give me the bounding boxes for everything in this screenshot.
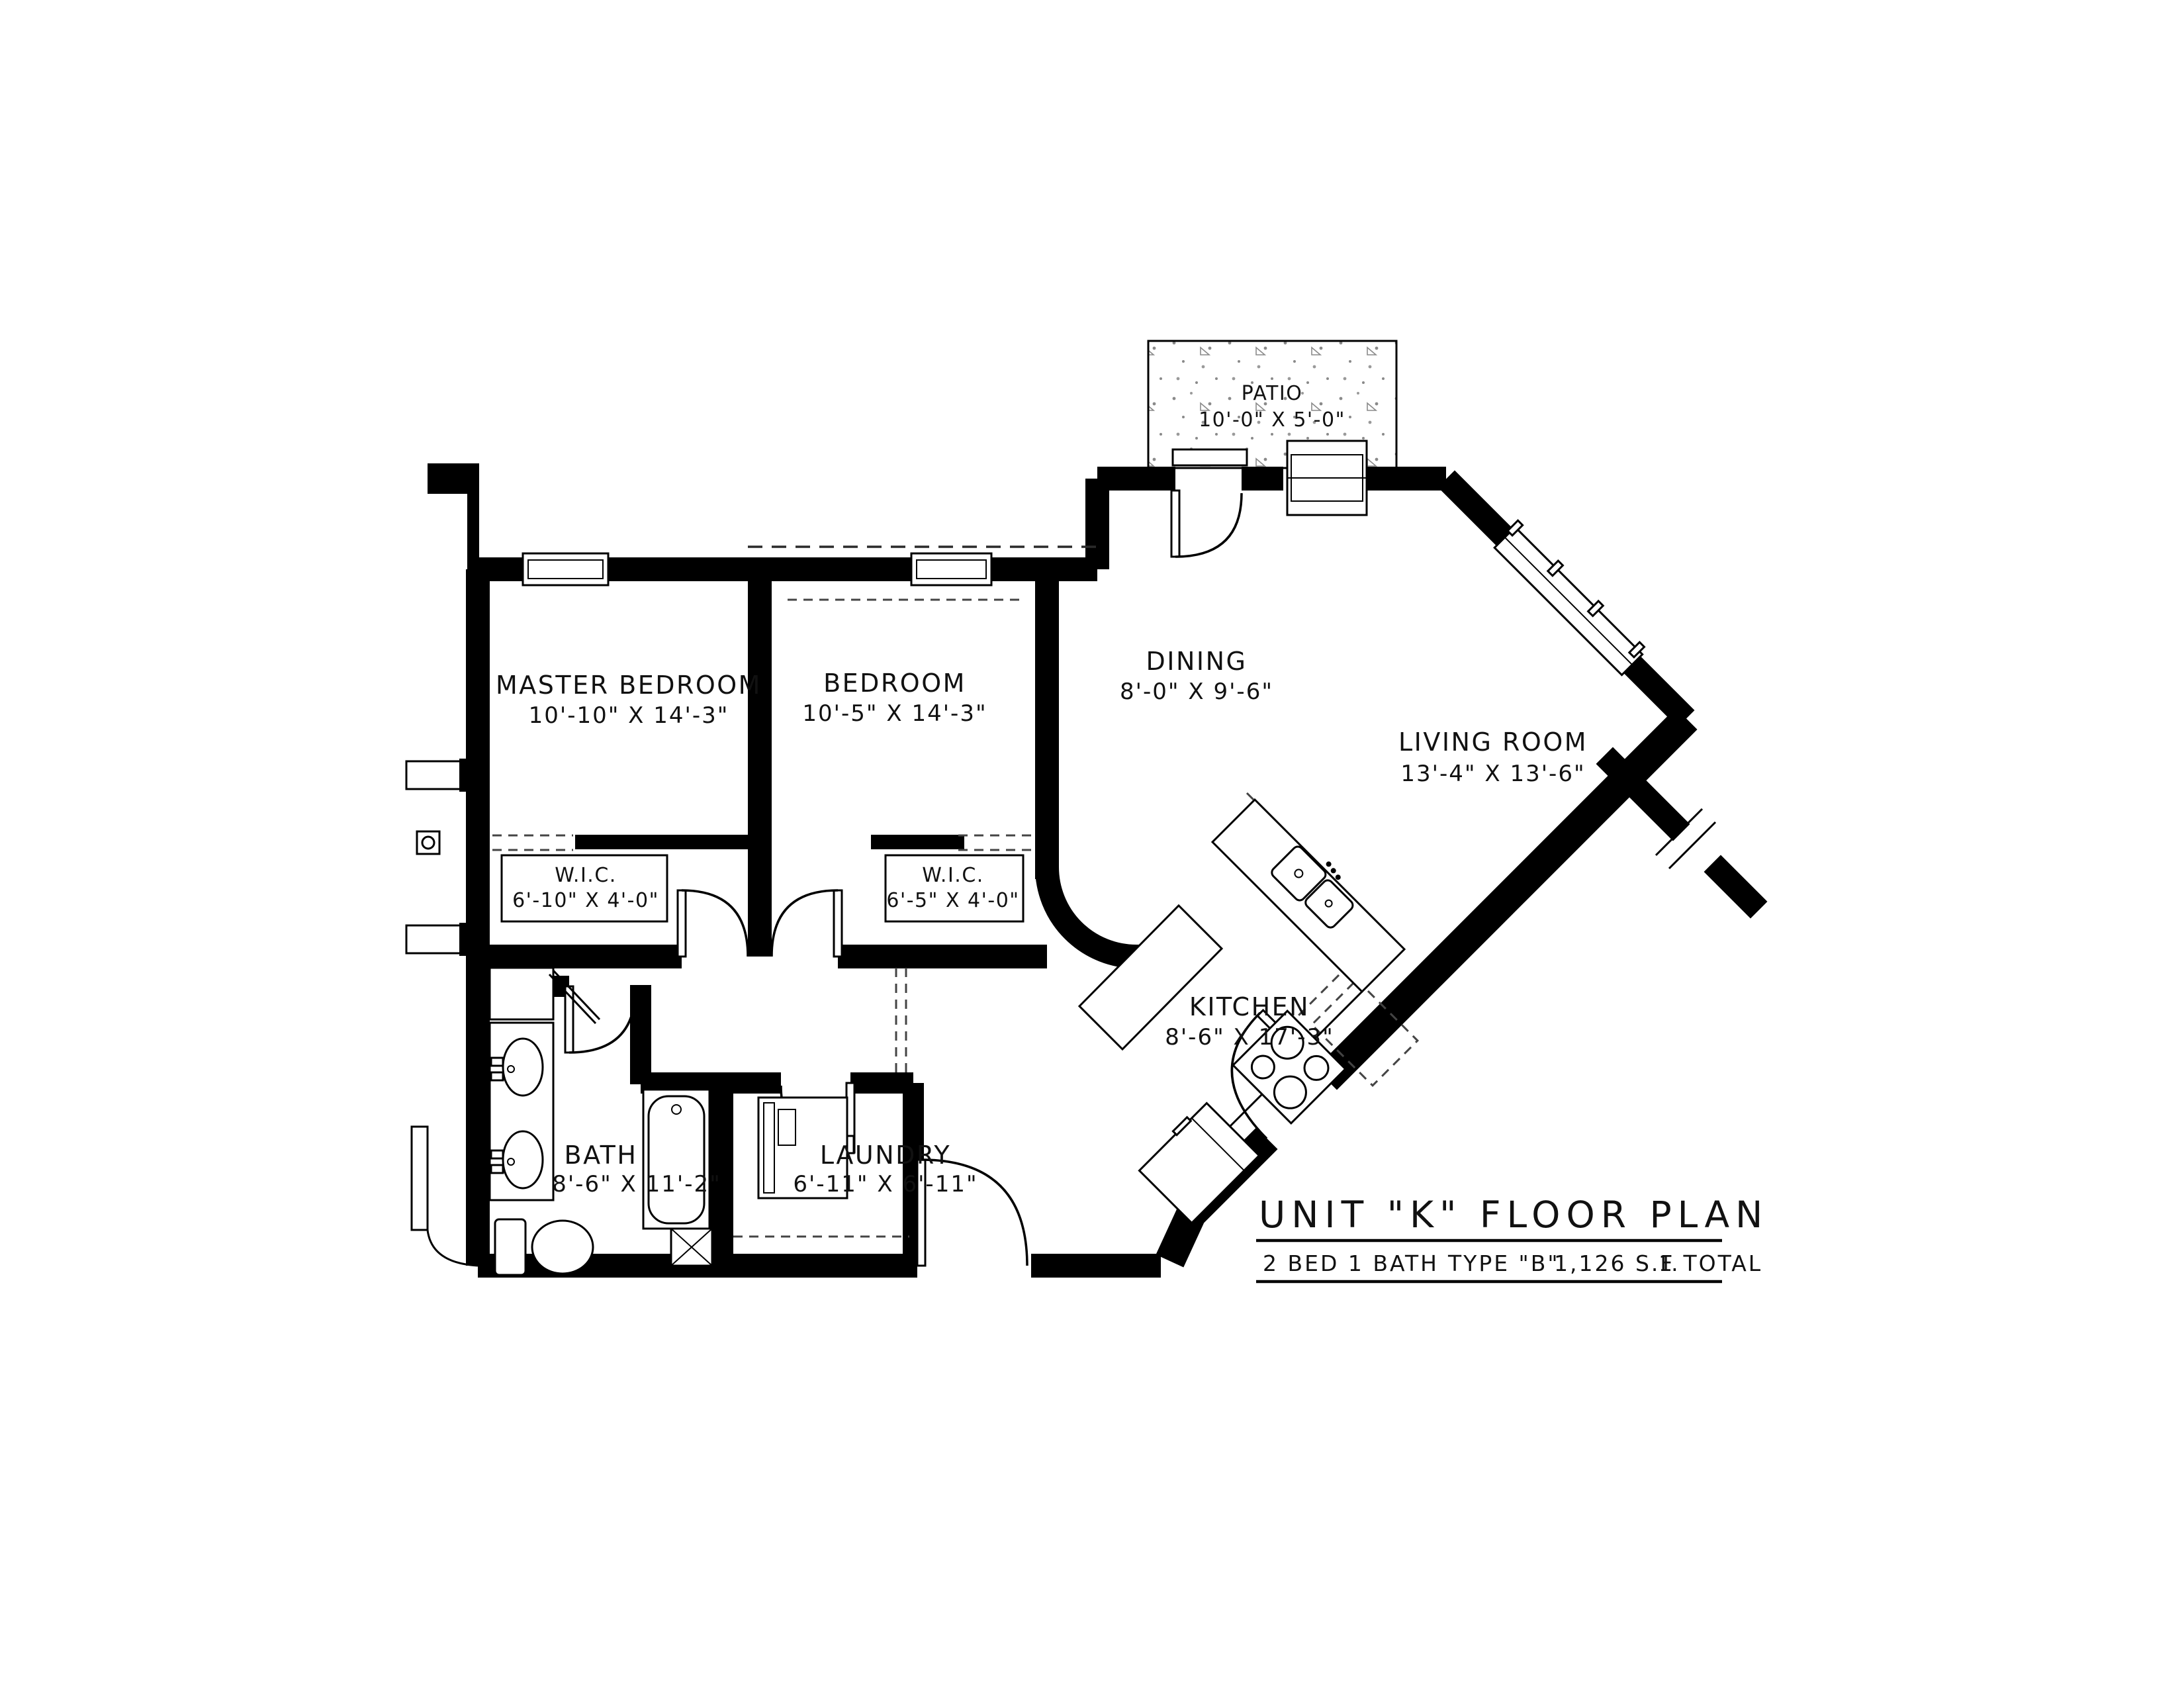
kitchen-peninsula-counter (1212, 800, 1404, 992)
bath-fixtures (490, 968, 712, 1275)
vanity-double-sink (490, 1023, 553, 1200)
patio-door-threshold (1173, 449, 1247, 465)
dining-dims: 8'-0" X 9'-6" (1120, 679, 1273, 705)
exterior-stub-upper (406, 761, 466, 789)
plan-type: TYPE "B" (1447, 1250, 1560, 1276)
bath-dims: 8'-6" X 11'-2" (552, 1171, 721, 1197)
master-bedroom-window (523, 553, 608, 585)
wic-master-name: W.I.C. (555, 864, 617, 887)
plan-beds-baths: 2 BED 1 BATH (1263, 1250, 1439, 1276)
wic-master-label: W.I.C. 6'-10" X 4'-0" (512, 864, 659, 912)
party-wall-branch (1613, 764, 1751, 902)
master-bedroom-label: MASTER BEDROOM 10'-10" X 14'-3" (496, 671, 762, 729)
bedroom-name: BEDROOM (823, 669, 966, 698)
kitchen-name: KITCHEN (1189, 992, 1310, 1021)
exterior-stub-upper-cap (459, 759, 469, 792)
dining-window (1287, 441, 1367, 515)
master-bedroom-dims: 10'-10" X 14'-3" (529, 702, 729, 729)
dining-name: DINING (1146, 647, 1248, 676)
plan-total: 1 TOTAL (1659, 1250, 1762, 1276)
kitchen-dims: 8'-6" X 17'-3" (1165, 1024, 1334, 1051)
laundry-dims: 6'-11" X 6'-11" (793, 1171, 978, 1197)
wic-master-dims: 6'-10" X 4'-0" (512, 889, 659, 912)
floor-plan-drawing: PATIO 10'-0" X 5'-0" MASTER BEDROOM 10'-… (0, 0, 2184, 1688)
wic-bedroom-dims: 6'-5" X 4'-0" (886, 889, 1019, 912)
bedroom-door (772, 890, 842, 957)
mechanical-chase (671, 1229, 712, 1266)
wic-master-shelf-line (492, 835, 573, 850)
living-room-angled-window (1492, 520, 1647, 675)
bedroom-window (911, 553, 991, 585)
master-bedroom-name: MASTER BEDROOM (496, 671, 762, 700)
exterior-stub-lower (406, 925, 466, 953)
bedroom-label: BEDROOM 10'-5" X 14'-3" (802, 669, 987, 727)
wic-bedroom-shelf-line (958, 835, 1032, 850)
laundry-name: LAUNDRY (820, 1141, 951, 1170)
patio-door (1171, 491, 1242, 557)
exterior-chase (412, 1127, 428, 1230)
patio-name: PATIO (1242, 382, 1303, 405)
living-room-dims: 13'-4" X 13'-6" (1400, 761, 1585, 787)
hall-opening-header (896, 968, 906, 1079)
bath-name: BATH (565, 1141, 638, 1170)
patio-dims: 10'-0" X 5'-0" (1199, 408, 1345, 432)
floor-plan-page: PATIO 10'-0" X 5'-0" MASTER BEDROOM 10'-… (0, 0, 2184, 1688)
kitchen-label: KITCHEN 8'-6" X 17'-3" (1165, 992, 1334, 1051)
linen-closet (490, 968, 600, 1023)
toilet (495, 1219, 593, 1275)
wic-bedroom-label: W.I.C. 6'-5" X 4'-0" (886, 864, 1019, 912)
dining-label: DINING 8'-0" X 9'-6" (1120, 647, 1273, 705)
exterior-column (417, 831, 439, 854)
living-room-name: LIVING ROOM (1398, 727, 1588, 757)
bath-door (565, 986, 635, 1053)
exterior-wall-thin (467, 465, 479, 569)
living-room-label: LIVING ROOM 13'-4" X 13'-6" (1398, 727, 1588, 787)
master-bedroom-door (678, 890, 748, 957)
bathtub (643, 1090, 709, 1229)
wic-bedroom-name: W.I.C. (922, 864, 984, 887)
refrigerator (1136, 1100, 1259, 1223)
exterior-stub-lower-cap (459, 923, 469, 956)
plan-title: UNIT "K" FLOOR PLAN (1259, 1194, 1768, 1236)
title-block: UNIT "K" FLOOR PLAN 2 BED 1 BATH TYPE "B… (1256, 1194, 1768, 1282)
curved-wall (1047, 867, 1136, 957)
laundry-label: LAUNDRY 6'-11" X 6'-11" (793, 1141, 978, 1197)
bedroom-dims: 10'-5" X 14'-3" (802, 700, 987, 727)
